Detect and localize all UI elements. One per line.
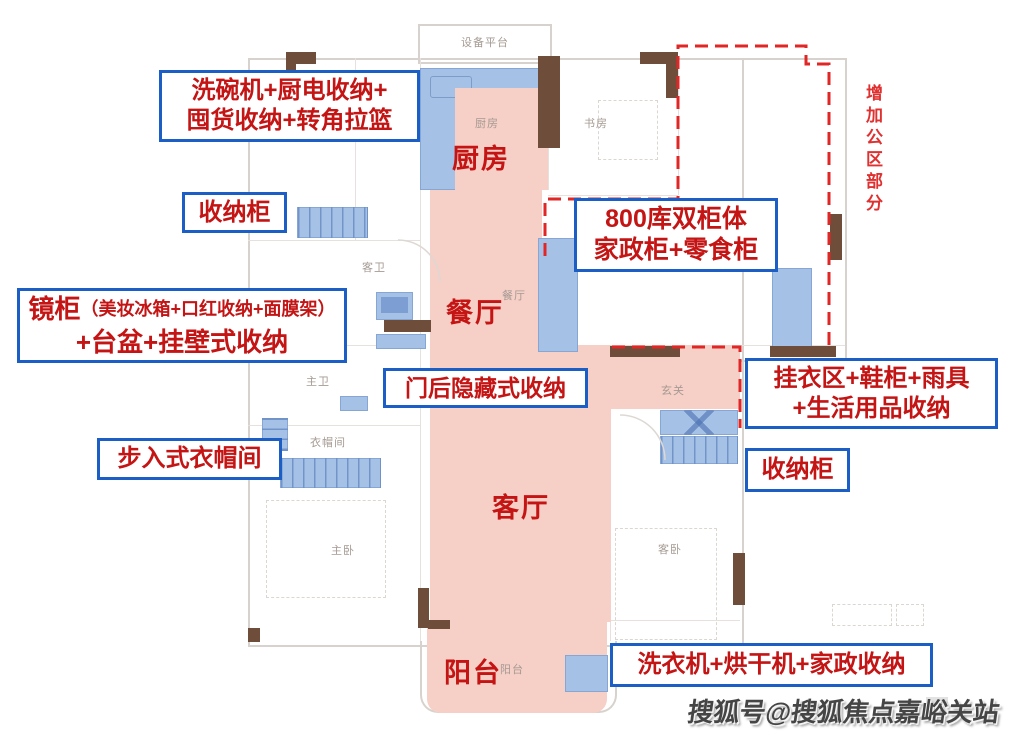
highlight-label-balcony: 阳台: [444, 651, 502, 690]
highlight-label-dining: 餐厅: [446, 291, 504, 330]
public-area-note: 增加公区部分: [860, 84, 885, 216]
annotation-line: 步入式衣帽间: [118, 444, 262, 474]
annotation-entry-storage: 挂衣区+鞋柜+雨具 +生活用品收纳: [745, 358, 998, 429]
annotation-line: +生活用品收纳: [792, 394, 950, 424]
mirror-cabinet-detail: （美妆冰箱+口红收纳+面膜架）: [80, 298, 335, 321]
highlight-label-living: 客厅: [492, 486, 550, 525]
annotation-line: 家政柜+零食柜: [594, 235, 759, 266]
floorplan-page: 设备平台: [0, 0, 1009, 740]
room-label-guest-bathroom: 客卫: [362, 259, 386, 275]
watermark: 搜狐号@搜狐焦点嘉峪关站: [685, 692, 1002, 729]
room-label-study: 书房: [584, 115, 608, 131]
annotation-line: 挂衣区+鞋柜+雨具: [773, 364, 969, 394]
annotation-line: 囤货收纳+转角拉篮: [186, 106, 392, 136]
room-label-guest-bedroom: 客卧: [658, 541, 682, 557]
room-label-master-bathroom: 主卫: [306, 373, 330, 389]
annotation-line: 收纳柜: [762, 455, 834, 485]
room-label-master-bedroom: 主卧: [331, 542, 355, 558]
annotation-line: 门后隐藏式收纳: [405, 374, 566, 403]
highlight-label-kitchen: 厨房: [452, 137, 510, 176]
annotation-line: 收纳柜: [199, 198, 271, 228]
annotation-kitchen-storage: 洗碗机+厨电收纳+ 囤货收纳+转角拉篮: [159, 70, 420, 142]
annotation-mirror-cabinet: 镜柜（美妆冰箱+口红收纳+面膜架） +台盆+挂壁式收纳: [17, 288, 347, 363]
annotation-behind-door: 门后隐藏式收纳: [383, 368, 588, 408]
room-label-kitchen-small: 厨房: [475, 115, 499, 131]
annotation-line: +台盆+挂壁式收纳: [76, 326, 288, 359]
annotation-line: 镜柜（美妆冰箱+口红收纳+面膜架）: [28, 293, 335, 326]
mirror-cabinet-title: 镜柜: [28, 293, 80, 326]
annotation-walkin-closet: 步入式衣帽间: [97, 438, 282, 480]
annotation-laundry: 洗衣机+烘干机+家政收纳: [610, 643, 933, 687]
annotation-line: 800库双柜体: [605, 204, 747, 235]
annotation-pantry: 800库双柜体 家政柜+零食柜: [574, 198, 778, 272]
annotation-storage-cabinet-right: 收纳柜: [745, 448, 850, 492]
room-label-entry: 玄关: [661, 382, 685, 398]
annotation-line: 洗碗机+厨电收纳+: [191, 76, 387, 106]
room-label-dining-small: 餐厅: [502, 287, 526, 303]
annotation-line: 洗衣机+烘干机+家政收纳: [637, 650, 905, 680]
room-label-cloakroom: 衣帽间: [310, 434, 346, 450]
annotation-storage-cabinet-left: 收纳柜: [182, 192, 287, 233]
room-label-balcony-small: 阳台: [500, 661, 524, 677]
